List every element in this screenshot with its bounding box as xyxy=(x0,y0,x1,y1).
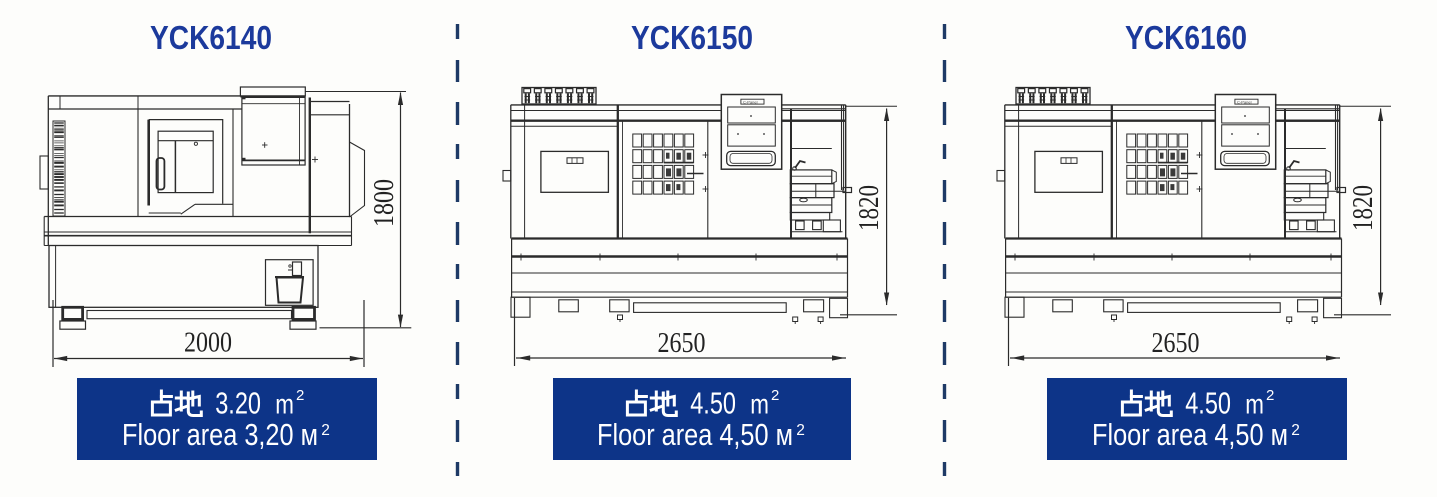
svg-text:1800: 1800 xyxy=(368,179,400,227)
svg-text:1820: 1820 xyxy=(853,185,885,231)
svg-text:2: 2 xyxy=(796,422,805,439)
svg-text:YCK6150: YCK6150 xyxy=(631,19,753,56)
svg-text:YCK6140: YCK6140 xyxy=(150,19,272,56)
svg-text:3.20: 3.20 xyxy=(215,386,261,421)
svg-text:2: 2 xyxy=(321,422,330,439)
svg-text:4.50: 4.50 xyxy=(1185,386,1231,421)
svg-text:m: m xyxy=(1245,389,1264,420)
svg-text:2650: 2650 xyxy=(658,327,706,359)
svg-text:Floor area 4,50 м: Floor area 4,50 м xyxy=(1092,418,1288,452)
svg-text:2: 2 xyxy=(296,387,304,404)
svg-text:2: 2 xyxy=(1266,387,1274,404)
svg-text:2: 2 xyxy=(1291,422,1300,439)
svg-text:Floor area 3,20 м: Floor area 3,20 м xyxy=(122,418,318,452)
svg-text:Floor area 4,50 м: Floor area 4,50 м xyxy=(597,418,793,452)
svg-text:m: m xyxy=(750,389,769,420)
svg-text:2: 2 xyxy=(771,387,779,404)
svg-text:4.50: 4.50 xyxy=(690,386,736,421)
svg-text:m: m xyxy=(275,389,294,420)
svg-text:YCK6160: YCK6160 xyxy=(1125,19,1247,56)
svg-text:C-Panel: C-Panel xyxy=(743,99,758,104)
svg-text:2000: 2000 xyxy=(184,327,232,359)
